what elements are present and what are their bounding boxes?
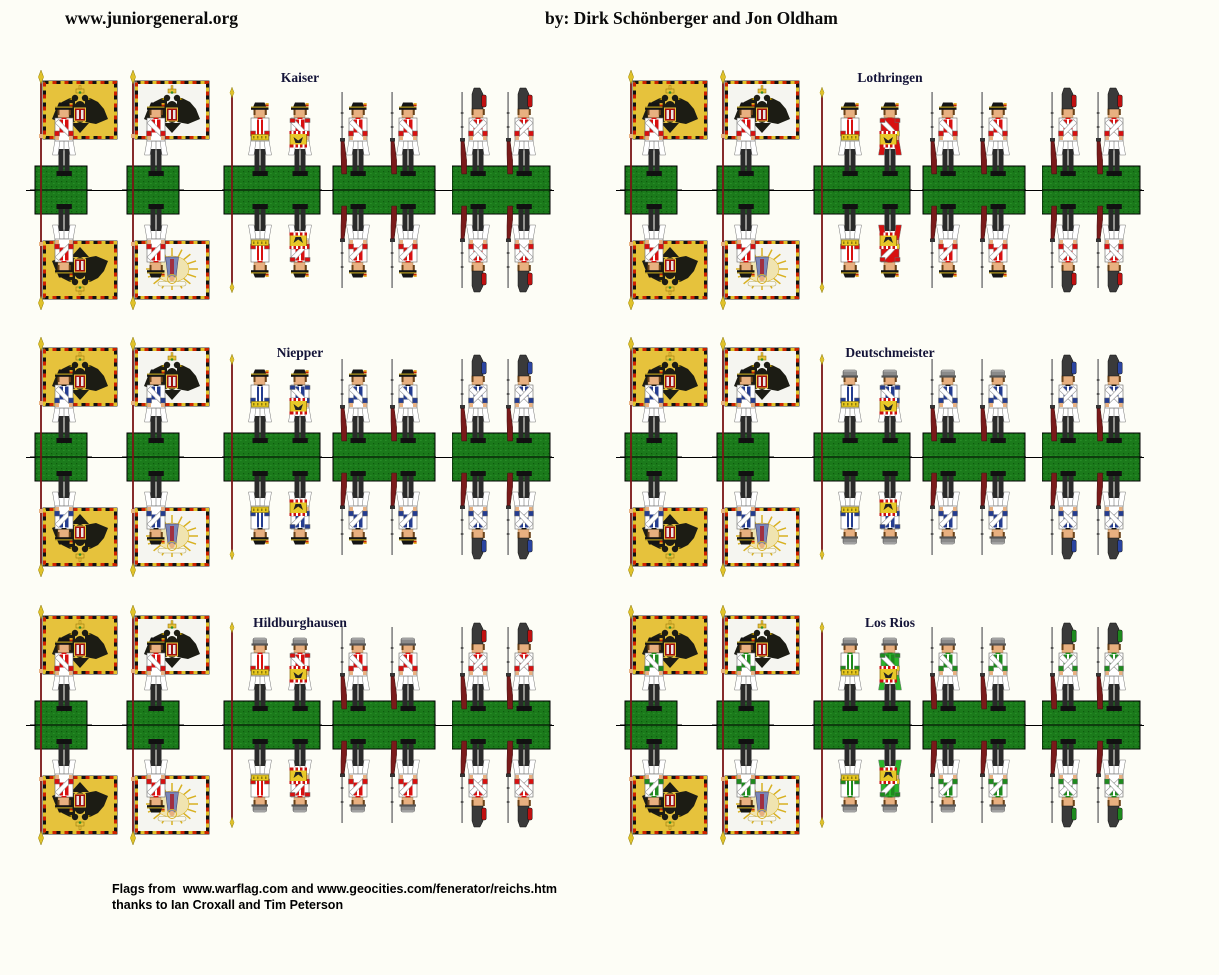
grenadier-strip <box>1042 80 1142 300</box>
flag-bearer-strip-2 <box>122 332 212 582</box>
flag-bearer-strip-2 <box>712 65 802 315</box>
grenadier-strip <box>452 347 552 567</box>
credits-line-1: Flags from www.warflag.com and www.geoci… <box>112 882 557 896</box>
musketeer-strip <box>922 615 1026 835</box>
flag-bearer-strip-1 <box>620 65 710 315</box>
grenadier-strip <box>452 80 552 300</box>
flag-bearer-strip-1 <box>30 65 120 315</box>
command-strip <box>812 80 912 300</box>
grenadier-strip <box>452 615 552 835</box>
musketeer-strip <box>922 80 1026 300</box>
command-strip <box>222 615 322 835</box>
musketeer-strip <box>922 347 1026 567</box>
flag-bearer-strip-2 <box>122 600 212 850</box>
musketeer-strip <box>332 347 436 567</box>
paper-soldiers-sheet: www.juniorgeneral.org by: Dirk Schönberg… <box>0 0 1219 975</box>
grenadier-strip <box>1042 615 1142 835</box>
grenadier-strip <box>1042 347 1142 567</box>
flag-bearer-strip-2 <box>122 65 212 315</box>
musketeer-strip <box>332 80 436 300</box>
flag-bearer-strip-2 <box>712 600 802 850</box>
byline: by: Dirk Schönberger and Jon Oldham <box>545 8 838 29</box>
credits: Flags from www.warflag.com and www.geoci… <box>112 881 557 913</box>
flag-bearer-strip-1 <box>620 600 710 850</box>
flag-bearer-strip-1 <box>30 600 120 850</box>
site-title: www.juniorgeneral.org <box>65 8 238 29</box>
flag-bearer-strip-2 <box>712 332 802 582</box>
command-strip <box>812 347 912 567</box>
flag-bearer-strip-1 <box>30 332 120 582</box>
command-strip <box>222 347 322 567</box>
musketeer-strip <box>332 615 436 835</box>
command-strip <box>812 615 912 835</box>
command-strip <box>222 80 322 300</box>
flag-bearer-strip-1 <box>620 332 710 582</box>
credits-line-2: thanks to Ian Croxall and Tim Peterson <box>112 898 343 912</box>
